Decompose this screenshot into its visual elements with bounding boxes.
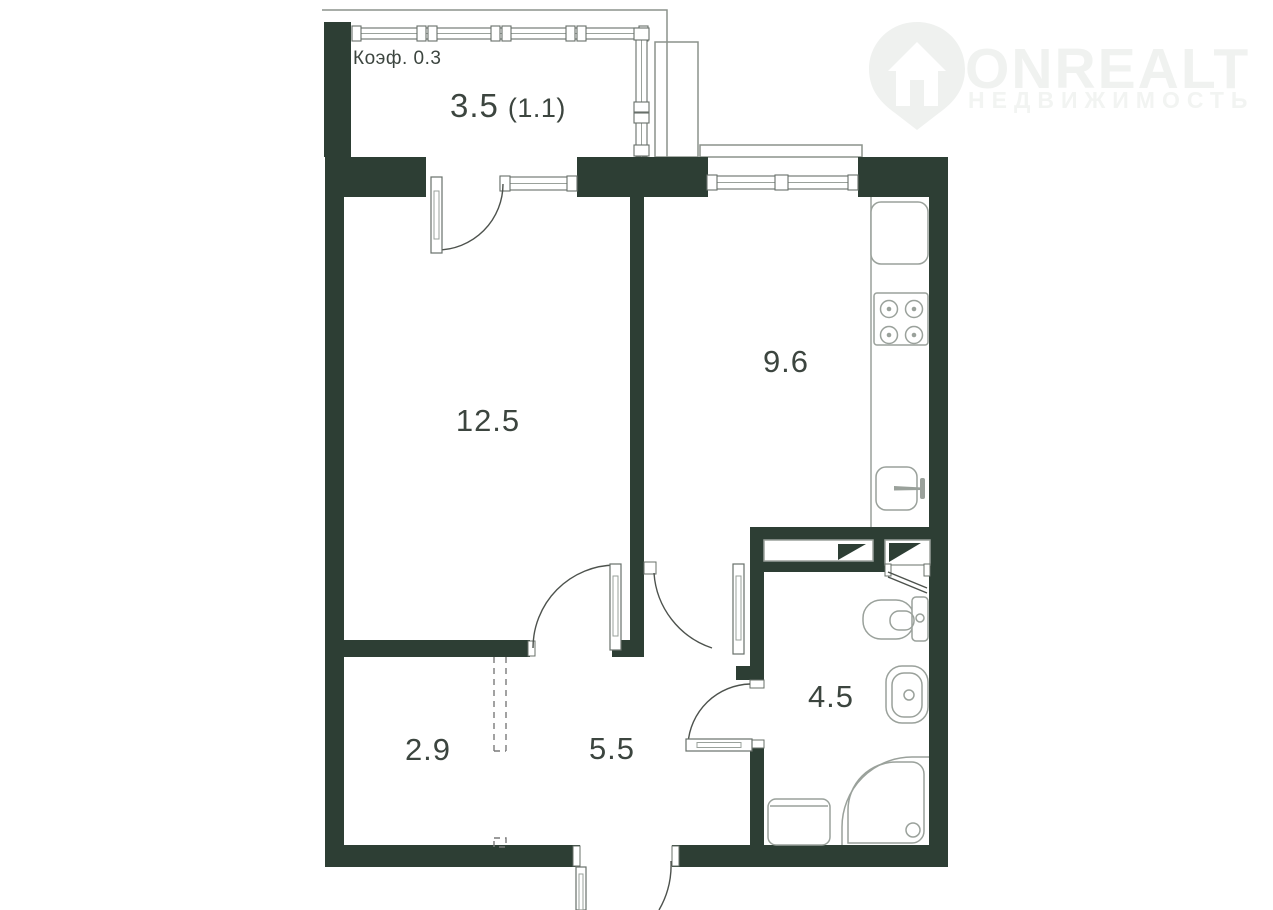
bathroom-fixtures	[768, 597, 929, 845]
closet-area-label: 2.9	[405, 732, 451, 767]
vent-shaft-box	[764, 540, 873, 561]
wall-closet-top	[343, 640, 530, 657]
wall-bottom-right	[672, 845, 948, 867]
balcony-area-label: 3.5(1.1)	[450, 87, 566, 124]
entrance-door	[573, 846, 679, 910]
wall-under-vent	[764, 561, 885, 572]
kitchen-window	[707, 175, 858, 190]
wall-bath-top	[750, 527, 948, 540]
onrealt-logo: ONREALT НЕДВИЖИМОСТЬ	[869, 22, 1254, 130]
wall-bath-left-stub	[736, 666, 764, 680]
washbasin-icon	[886, 666, 928, 723]
house-door-icon	[910, 80, 924, 106]
wall-bath-left-lower	[750, 748, 764, 845]
kitchen-door	[644, 562, 744, 654]
bathroom-hall-door	[686, 680, 764, 751]
floorplan-drawing: ONREALT НЕДВИЖИМОСТЬ	[0, 0, 1273, 910]
toilet-icon	[863, 597, 928, 641]
window-sill	[700, 145, 862, 157]
wall-kitchen-divider	[630, 197, 644, 657]
kitchen-sink-icon	[876, 467, 925, 510]
balcony-glazing	[352, 26, 649, 157]
washing-machine-icon	[768, 799, 830, 845]
brand-tagline: НЕДВИЖИМОСТЬ	[968, 87, 1254, 113]
balcony-partition	[655, 42, 698, 157]
shower-tray-icon	[842, 757, 929, 845]
wardrobe-dashed-outline	[494, 657, 506, 847]
wall-bottom-left	[325, 845, 580, 867]
coefficient-label: Коэф. 0.3	[353, 48, 441, 69]
room-labels: Коэф. 0.3 3.5(1.1) 12.5 9.6 4.5 5.5 2.9	[353, 48, 854, 767]
stove-icon	[874, 293, 928, 345]
living-room-window	[500, 176, 577, 191]
bathroom-area-label: 4.5	[808, 679, 854, 714]
bathroom-top-door	[885, 564, 930, 593]
balcony-door	[431, 177, 503, 253]
wall-left	[325, 157, 344, 867]
wall-right	[929, 157, 948, 867]
kitchen-fixtures	[871, 197, 928, 527]
hallway-area-label: 5.5	[589, 731, 635, 766]
fridge-icon	[871, 202, 928, 264]
kitchen-area-label: 9.6	[763, 344, 809, 379]
living-room-door	[528, 564, 621, 656]
floorplan-canvas: ONREALT НЕДВИЖИМОСТЬ	[0, 0, 1273, 910]
wall-balcony-left	[324, 22, 351, 157]
vent-shafts	[764, 540, 930, 565]
wall-bath-left-upper	[750, 527, 764, 680]
living-room-area-label: 12.5	[456, 403, 520, 438]
wall-top-b	[577, 157, 708, 197]
